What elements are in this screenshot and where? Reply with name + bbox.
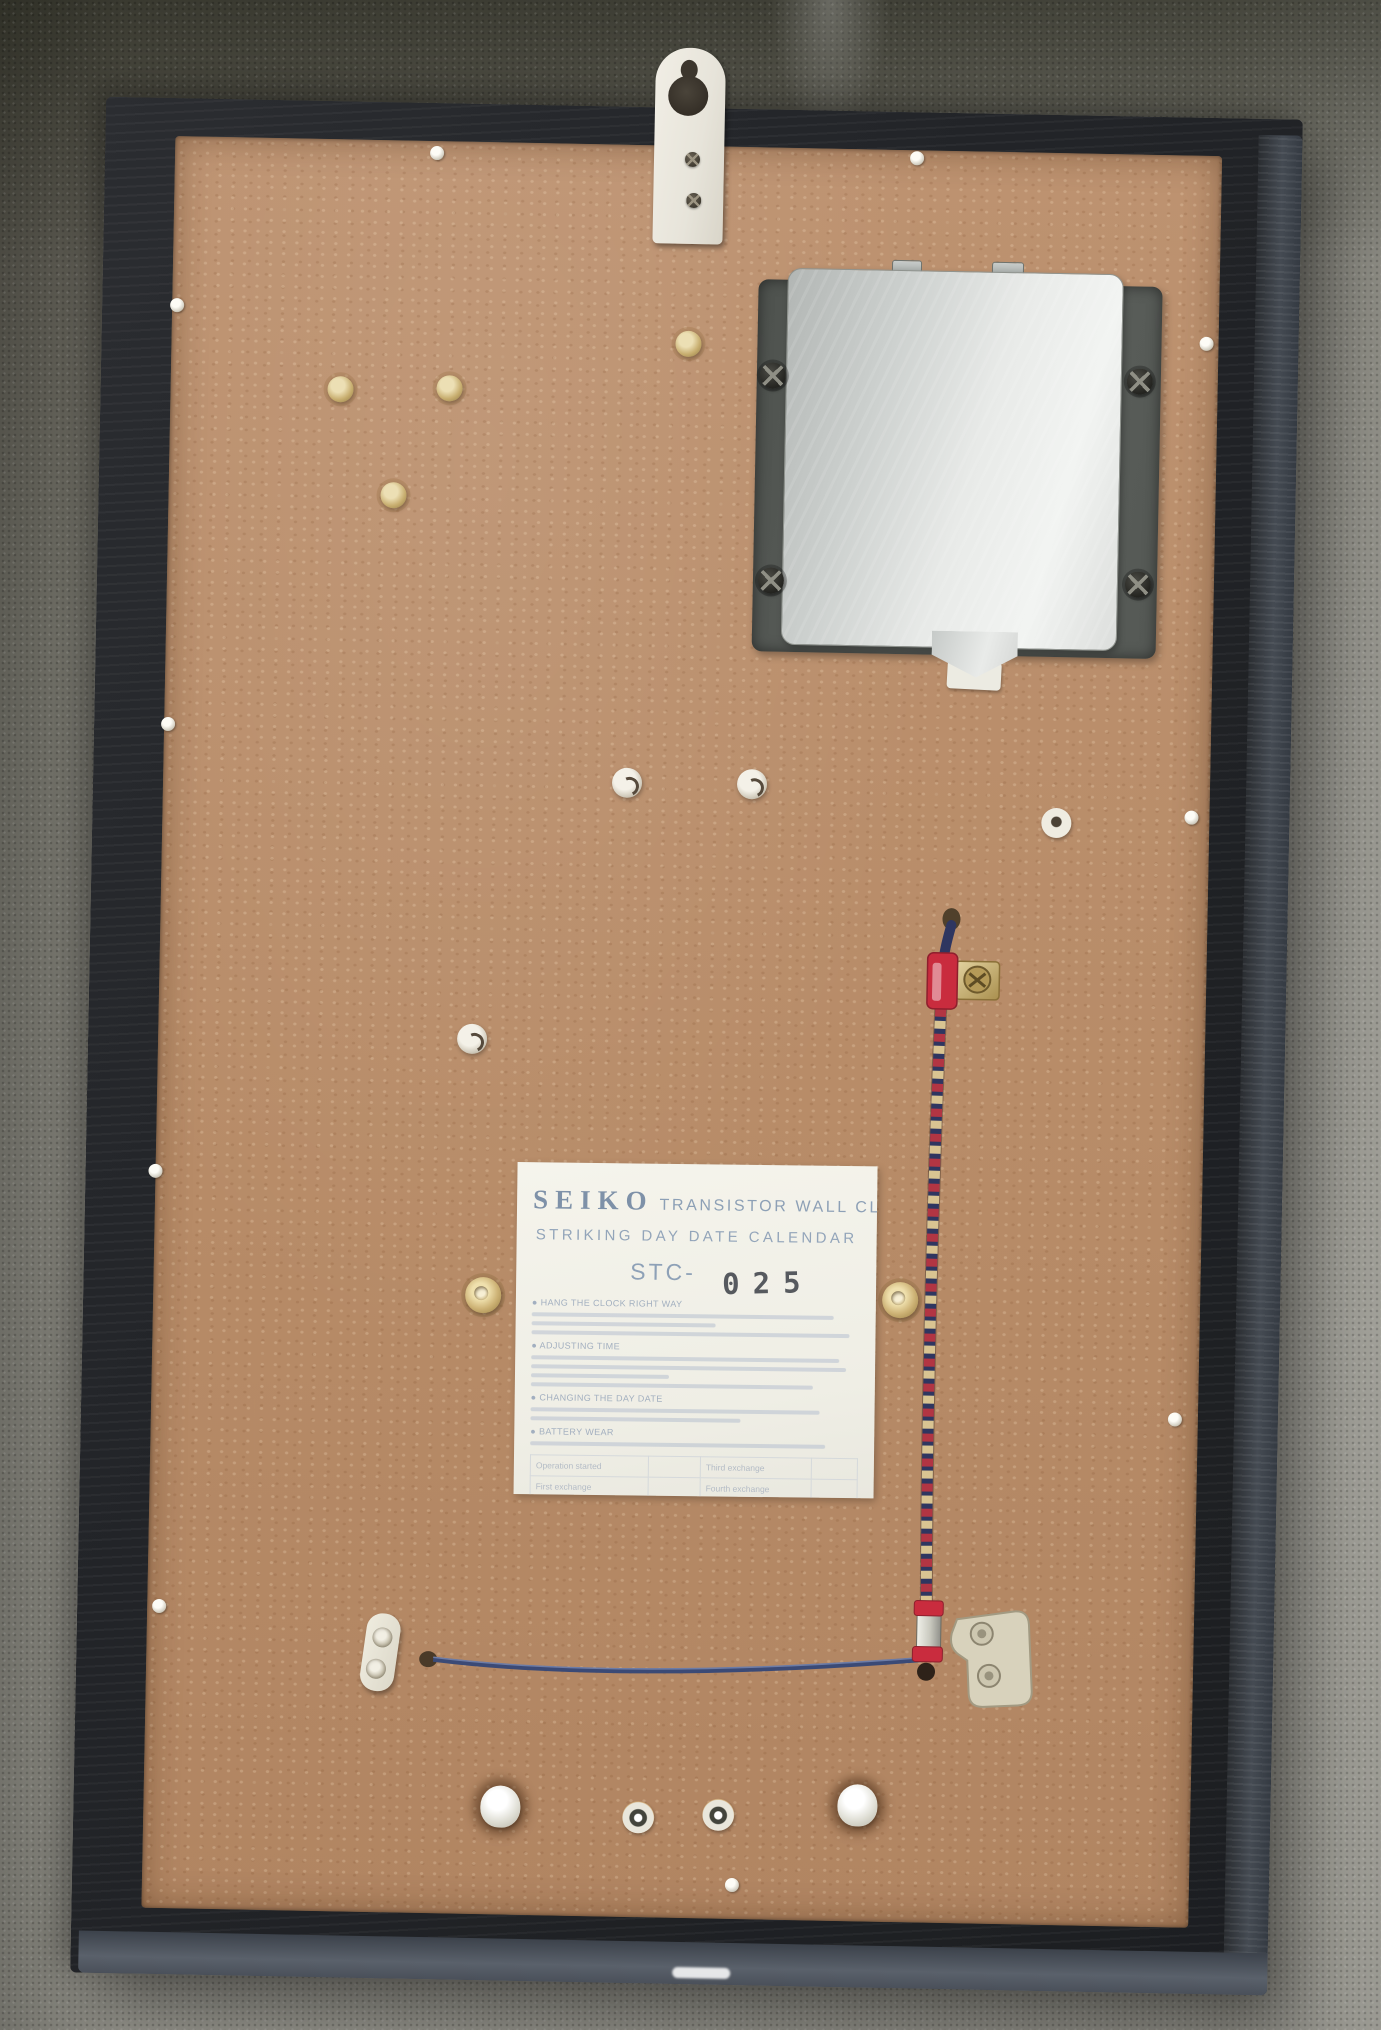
label-section: ● ADJUSTING TIME (531, 1340, 860, 1390)
faint-text-line (530, 1416, 740, 1423)
seiko-logo: SEIKO (533, 1184, 654, 1215)
faint-text-line (531, 1382, 813, 1389)
label-subtitle: STRIKING DAY DATE CALENDAR (533, 1226, 861, 1247)
faint-text-line (532, 1321, 716, 1327)
faint-text-line (531, 1407, 820, 1415)
table-cell-blank (811, 1458, 857, 1480)
section-heading: ● BATTERY WEAR (530, 1426, 858, 1440)
instruction-label: SEIKOTRANSISTOR WALL CLOCK STRIKING DAY … (514, 1162, 878, 1498)
cord-clamp-bottom (912, 1600, 944, 1681)
section-heading: ● HANG THE CLOCK RIGHT WAY (532, 1297, 860, 1311)
section-heading: ● ADJUSTING TIME (531, 1340, 859, 1354)
blue-wire (419, 1648, 921, 1677)
faint-text-line (530, 1441, 825, 1449)
model-row: STC-025 (630, 1252, 860, 1295)
table-cell: Operation started (530, 1455, 648, 1477)
section-heading: ● CHANGING THE DAY DATE (531, 1392, 859, 1406)
metal-bracket-right (950, 1610, 1034, 1708)
product-name: TRANSISTOR WALL CLOCK (660, 1197, 878, 1217)
label-title-row: SEIKOTRANSISTOR WALL CLOCK (533, 1184, 861, 1219)
cord-clamp-top (927, 953, 1000, 1010)
label-section: ● BATTERY WEAR (530, 1426, 858, 1449)
cord-and-wire-overlay (70, 97, 1303, 1996)
faint-text-line (531, 1364, 846, 1372)
table-cell-blank (648, 1456, 701, 1478)
label-section: ● HANG THE CLOCK RIGHT WAY (531, 1297, 859, 1338)
faint-text-line (531, 1355, 839, 1363)
table-cell: Fourth exchange (700, 1478, 811, 1499)
cord-end-tip (917, 1663, 935, 1681)
clock-back-assembly: SEIKOTRANSISTOR WALL CLOCK STRIKING DAY … (70, 97, 1303, 1996)
faint-text-line (531, 1373, 669, 1379)
faint-text-line (531, 1330, 849, 1338)
model-prefix: STC- (630, 1258, 696, 1285)
table-cell-blank (811, 1479, 857, 1498)
table-cell-blank (648, 1477, 701, 1498)
table-cell: Third exchange (700, 1457, 811, 1479)
battery-exchange-table: Operation started Third exchange First e… (529, 1454, 858, 1498)
label-section: ● CHANGING THE DAY DATE (530, 1392, 858, 1424)
model-number-stamp: 025 (721, 1265, 813, 1301)
twisted-pendulum-cord (925, 1009, 941, 1603)
faint-text-line (532, 1312, 834, 1320)
